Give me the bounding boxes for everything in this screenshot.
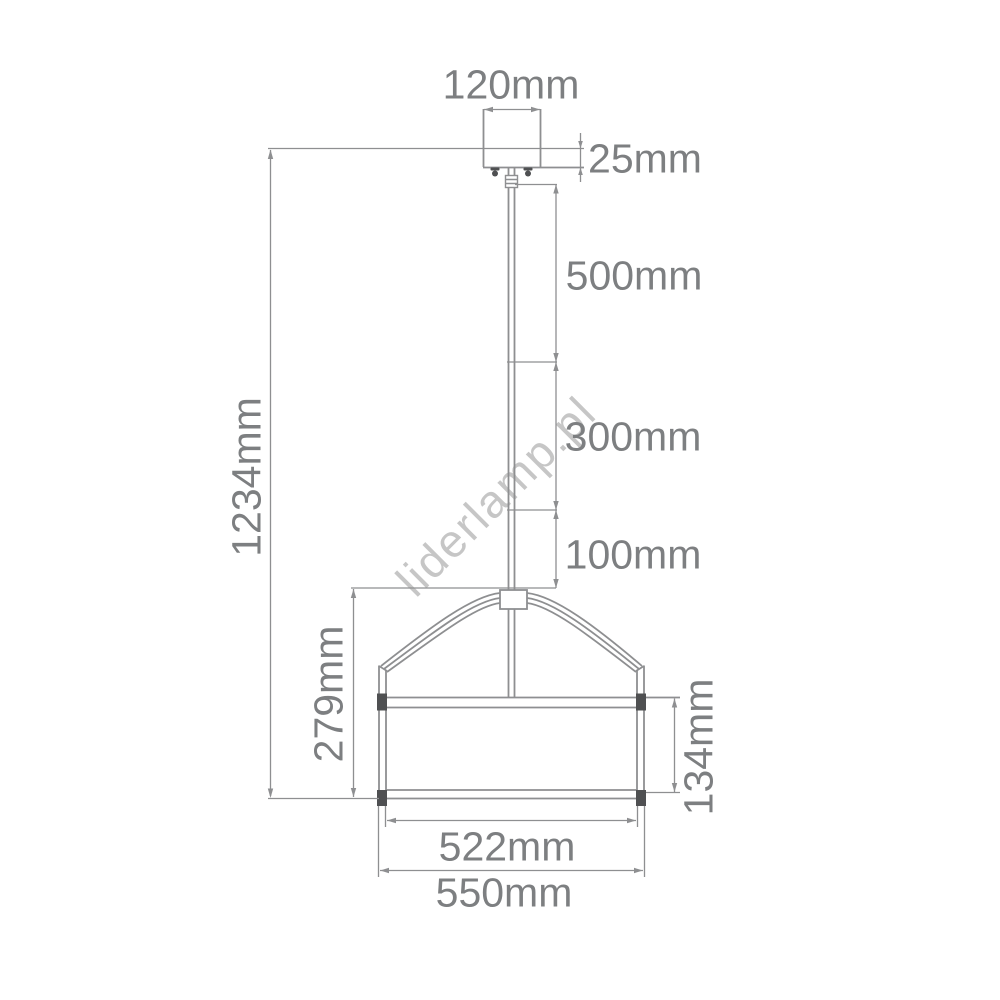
dim-label-outer-diameter: 550mm <box>436 873 573 914</box>
dimension-labels: 120mm 25mm 500mm 300mm 100mm 1234mm 279m… <box>0 0 1000 1000</box>
diagram-canvas: liderlamp.pl <box>0 0 1000 1000</box>
dim-label-shade-height: 279mm <box>309 626 350 763</box>
dim-label-total-height: 1234mm <box>227 397 268 557</box>
dim-label-inner-diameter: 522mm <box>439 827 576 868</box>
dim-label-rod-lower: 100mm <box>565 535 702 576</box>
dim-label-rod-middle: 300mm <box>565 417 702 458</box>
dim-label-rod-upper: 500mm <box>566 256 703 297</box>
dim-label-canopy-width: 120mm <box>443 65 580 106</box>
dim-label-drum-height: 134mm <box>679 679 720 816</box>
dim-label-canopy-height: 25mm <box>588 139 702 180</box>
